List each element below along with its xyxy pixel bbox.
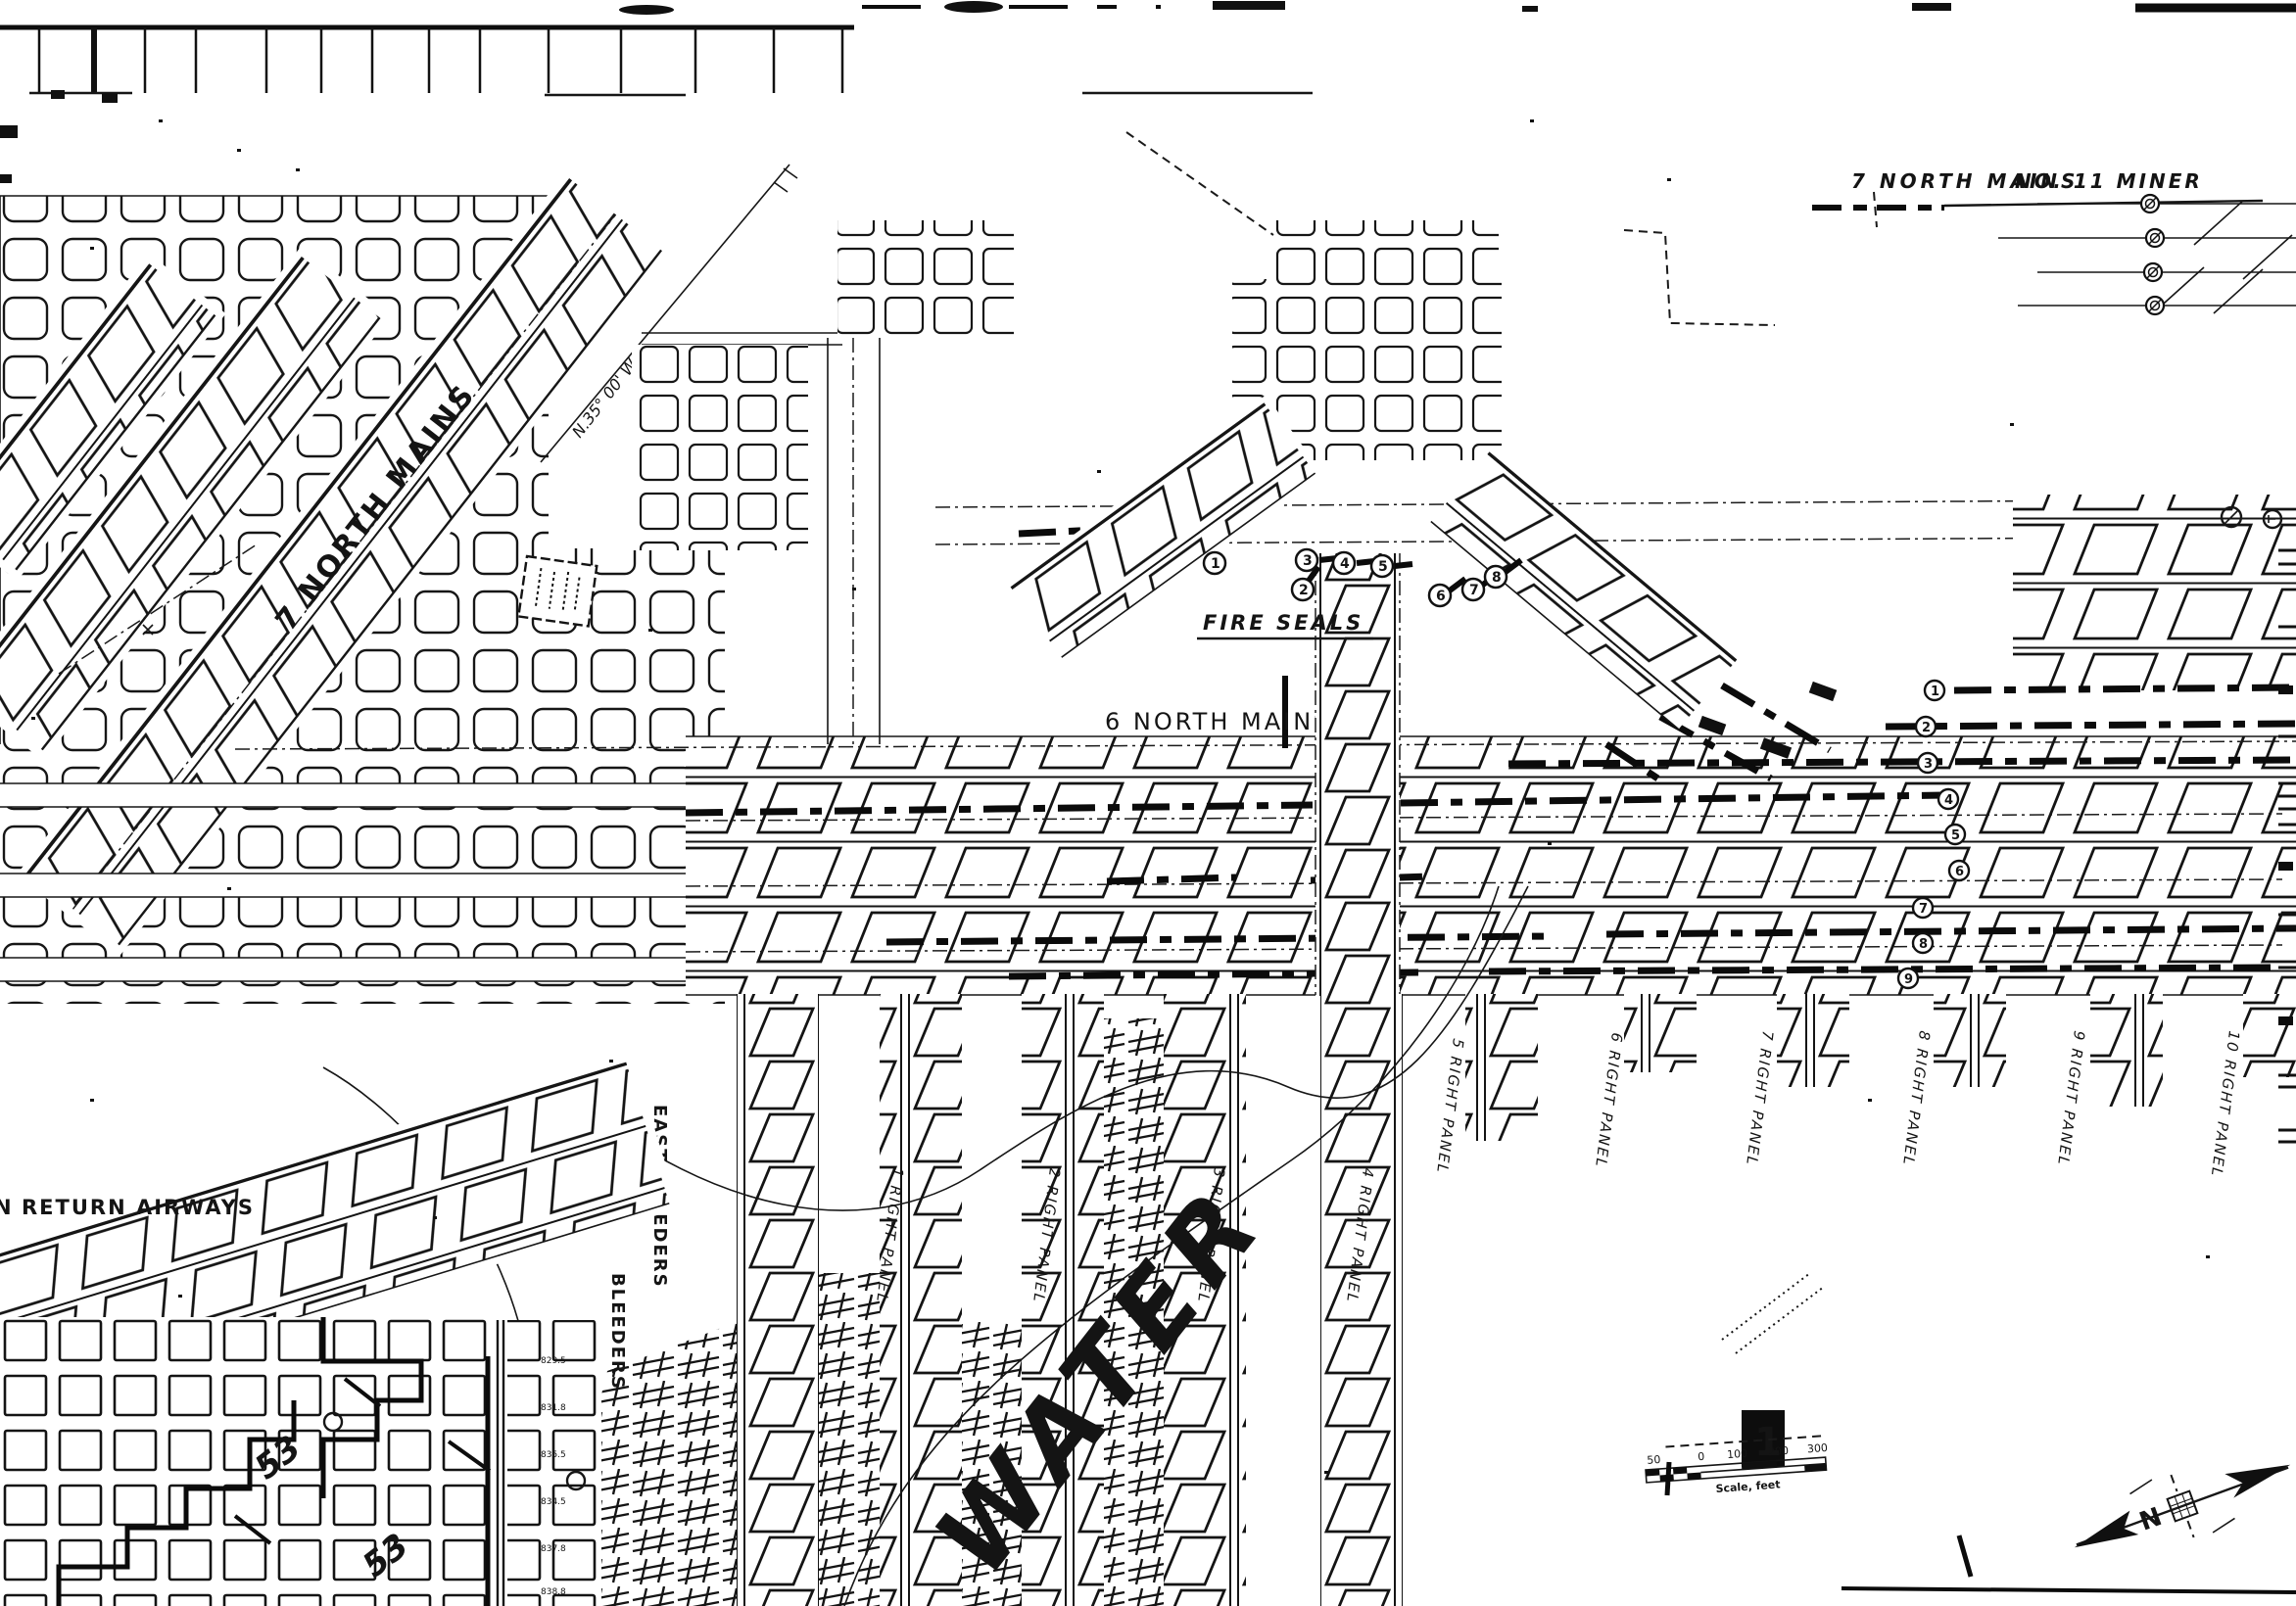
svg-text:829.5: 829.5 xyxy=(541,1356,566,1366)
svg-text:6: 6 xyxy=(1436,589,1446,604)
svg-text:9: 9 xyxy=(1904,972,1913,987)
svg-text:834.5: 834.5 xyxy=(541,1497,566,1507)
survey-markers xyxy=(2141,195,2164,314)
tiny-annotation xyxy=(1722,1273,1824,1353)
sheet-edge-comb xyxy=(0,27,1313,103)
svg-text:8: 8 xyxy=(1492,570,1502,586)
svg-text:9 RIGHT PANEL: 9 RIGHT PANEL xyxy=(2054,1030,2088,1168)
note-box xyxy=(518,556,597,626)
mine-map-sheet: 7 NORTH MAINS N.35° 00' W xyxy=(0,0,2296,1606)
legend: 1 50 0 100 200 300 Scale, feet N xyxy=(1644,1273,2296,1592)
svg-text:835.5: 835.5 xyxy=(541,1450,566,1460)
return-airways-label: RETURN AIRWAYS xyxy=(22,1196,255,1219)
svg-text:8: 8 xyxy=(1919,937,1928,952)
svg-text:3: 3 xyxy=(1303,553,1313,569)
north-arrow: N xyxy=(2062,1434,2296,1579)
svg-text:3: 3 xyxy=(1924,757,1933,772)
bottom-left-grid: 53 53 829.5831.8835.5834.5837.8838.8 xyxy=(0,1317,601,1606)
map-drawing: 7 NORTH MAINS N.35° 00' W xyxy=(0,0,2296,1606)
svg-text:10 RIGHT PANEL: 10 RIGHT PANEL xyxy=(2208,1030,2243,1179)
top-edge-artifacts xyxy=(619,1,2296,15)
svg-text:2: 2 xyxy=(1299,583,1309,598)
svg-text:7: 7 xyxy=(1919,902,1928,917)
top-right-section: 7 NORTH MAINS NO. 11 MINER xyxy=(1624,169,2296,325)
svg-text:4: 4 xyxy=(1944,793,1953,808)
scale-tick-50: 50 xyxy=(1647,1453,1661,1467)
svg-text:7 RIGHT PANEL: 7 RIGHT PANEL xyxy=(1743,1030,1777,1168)
fire-seals-label: FIRE SEALS xyxy=(1203,611,1363,635)
svg-text:1: 1 xyxy=(1211,556,1220,572)
svg-text:5: 5 xyxy=(1378,559,1388,575)
six-north-mains-label: 6 NORTH MAINS xyxy=(1105,708,1331,735)
return-airways-fragment: N xyxy=(0,1196,12,1219)
north-letter: N xyxy=(2135,1502,2166,1537)
scale-tick-100: 100 xyxy=(1727,1447,1748,1461)
scale-tick-300: 300 xyxy=(1807,1441,1829,1455)
svg-text:8 RIGHT PANEL: 8 RIGHT PANEL xyxy=(1899,1030,1934,1168)
svg-text:4: 4 xyxy=(1340,556,1350,572)
svg-text:837.8: 837.8 xyxy=(541,1544,566,1554)
svg-text:5: 5 xyxy=(1951,828,1960,843)
svg-text:838.8: 838.8 xyxy=(541,1587,566,1597)
scale-bar: 50 0 100 200 300 Scale, feet xyxy=(1644,1436,1830,1500)
svg-text:7: 7 xyxy=(1469,583,1479,598)
svg-text:6 RIGHT PANEL: 6 RIGHT PANEL xyxy=(1592,1032,1626,1170)
svg-text:1: 1 xyxy=(1931,685,1939,699)
svg-text:831.8: 831.8 xyxy=(541,1403,566,1413)
svg-text:5 RIGHT PANEL: 5 RIGHT PANEL xyxy=(1433,1038,1467,1176)
scale-caption: Scale, feet xyxy=(1715,1478,1781,1495)
scale-tick-0: 0 xyxy=(1698,1450,1705,1463)
title-no-11-miner: NO. 11 MINER xyxy=(2015,169,2203,193)
svg-text:6: 6 xyxy=(1955,865,1964,879)
scale-tick-200: 200 xyxy=(1768,1444,1790,1458)
svg-text:2: 2 xyxy=(1922,721,1931,735)
right-bleeders-label-2: BLEEDERS xyxy=(607,1273,628,1391)
